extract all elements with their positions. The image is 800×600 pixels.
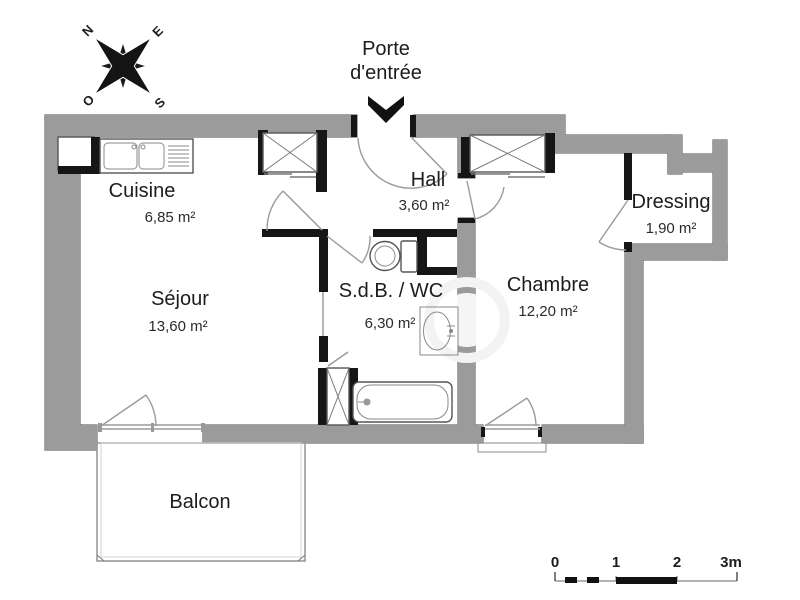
room-label-hall: Hall (411, 169, 445, 191)
area-label-sejour: 13,60 m² (148, 318, 207, 335)
sdb-door (327, 236, 370, 263)
chambre-door (467, 181, 504, 219)
floor-plan-svg: N E S O Porte d'entrée Cuisine 6,85 m² H… (0, 0, 800, 600)
room-label-balcon: Balcon (169, 491, 230, 513)
hall-closet (263, 133, 317, 177)
chambre-closet (470, 135, 545, 177)
chambre-window-door (478, 398, 546, 452)
entry-label-line1: Porte (362, 38, 410, 60)
compass-s: S (151, 94, 168, 111)
compass-e: E (149, 23, 166, 40)
room-label-chambre: Chambre (507, 274, 589, 296)
bathtub (353, 382, 452, 422)
area-label-hall: 3,60 m² (399, 197, 450, 214)
area-label-chambre: 12,20 m² (518, 303, 577, 320)
room-label-sejour: Séjour (151, 288, 209, 310)
area-label-cuisine: 6,85 m² (145, 209, 196, 226)
sejour-balcony-door (98, 395, 205, 432)
scale-label-2: 2 (673, 554, 681, 571)
compass-w: O (79, 92, 97, 110)
entry-label-line2: d'entrée (350, 62, 422, 84)
dressing-door (599, 200, 628, 250)
area-label-sdb: 6,30 m² (365, 315, 416, 332)
toilet (370, 241, 417, 272)
kitchen-sink (100, 139, 193, 173)
scale-bar: 0 1 2 3m (551, 554, 742, 584)
refrigerator (58, 137, 100, 174)
scale-label-1: 1 (612, 554, 620, 571)
area-label-dressing: 1,90 m² (646, 220, 697, 237)
room-label-sdb: S.d.B. / WC (339, 280, 443, 302)
entry-arrow-icon (368, 96, 404, 123)
hall-sejour-door (267, 191, 322, 231)
water-heater (327, 352, 349, 425)
room-label-cuisine: Cuisine (109, 180, 176, 202)
floor-plan: N E S O Porte d'entrée Cuisine 6,85 m² H… (0, 0, 800, 600)
scale-label-3m: 3m (720, 554, 742, 571)
compass-n: N (79, 22, 96, 39)
scale-label-0: 0 (551, 554, 559, 571)
room-label-dressing: Dressing (632, 191, 711, 213)
